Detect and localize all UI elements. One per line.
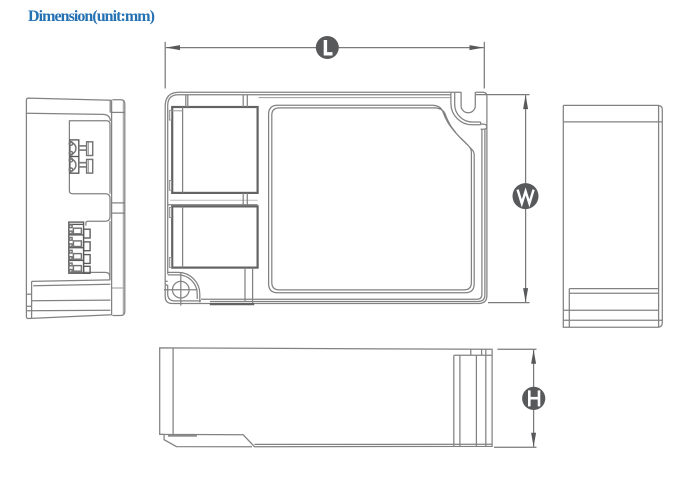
svg-text:Dimension(unit:mm): Dimension(unit:mm) [28, 8, 155, 25]
